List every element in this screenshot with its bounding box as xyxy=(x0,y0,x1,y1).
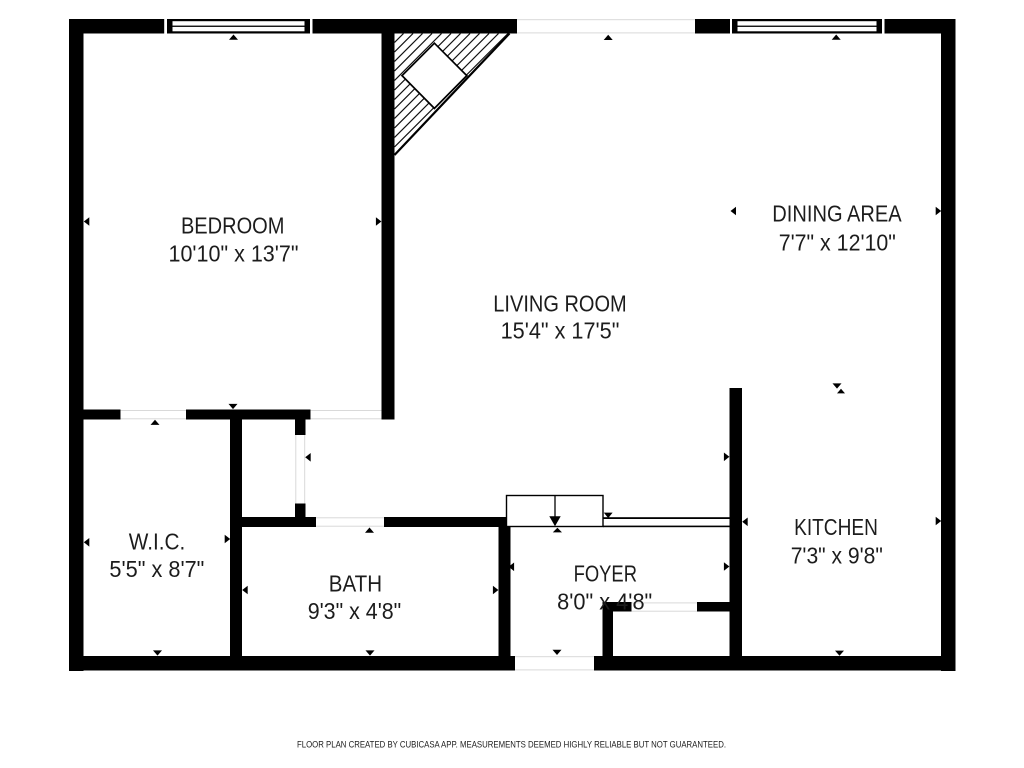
svg-text:8'0" x 4'8": 8'0" x 4'8" xyxy=(557,588,652,614)
svg-text:5'5" x 8'7": 5'5" x 8'7" xyxy=(109,556,204,582)
svg-text:KITCHEN: KITCHEN xyxy=(794,514,878,540)
svg-text:BATH: BATH xyxy=(329,571,382,597)
svg-text:7'7" x 12'10": 7'7" x 12'10" xyxy=(779,230,896,256)
svg-text:7'3" x 9'8": 7'3" x 9'8" xyxy=(791,543,883,569)
svg-text:FOYER: FOYER xyxy=(574,560,637,586)
svg-text:W.I.C.: W.I.C. xyxy=(129,529,186,555)
svg-text:DINING AREA: DINING AREA xyxy=(772,201,902,227)
svg-text:10'10" x 13'7": 10'10" x 13'7" xyxy=(169,240,299,266)
svg-text:LIVING ROOM: LIVING ROOM xyxy=(493,290,626,316)
svg-text:BEDROOM: BEDROOM xyxy=(181,213,285,239)
svg-text:9'3" x 4'8": 9'3" x 4'8" xyxy=(308,598,402,624)
svg-text:15'4" x 17'5": 15'4" x 17'5" xyxy=(501,317,620,343)
svg-text:FLOOR PLAN CREATED BY CUBICASA: FLOOR PLAN CREATED BY CUBICASA APP. MEAS… xyxy=(297,740,726,751)
